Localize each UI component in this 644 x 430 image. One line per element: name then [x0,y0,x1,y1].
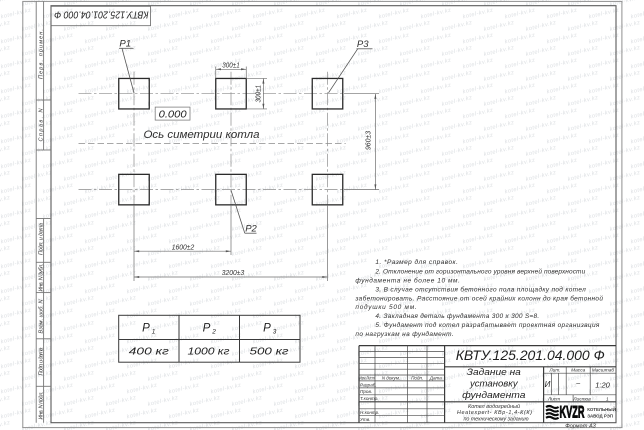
svg-text:–: – [575,381,580,388]
svg-text:КВТУ.125.201.04.000 Ф: КВТУ.125.201.04.000 Ф [456,347,605,363]
svg-text:P3: P3 [357,39,369,50]
svg-text:300±1: 300±1 [222,60,240,69]
svg-text:3. В случае отсутствия бетонн: 3. В случае отсутствия бетонного пола пл… [375,286,586,294]
svg-text:фундамента не более 10 мм.: фундамента не более 10 мм. [355,277,460,285]
svg-text:KVZR: KVZR [560,403,585,422]
svg-text:Ось симетрии котла: Ось симетрии котла [144,129,260,141]
svg-text:3: 3 [273,329,277,336]
svg-text:Лит.: Лит. [548,368,560,374]
svg-text:Справ. N: Справ. N [39,108,45,142]
svg-text:1: 1 [152,329,156,336]
svg-text:500 кг: 500 кг [250,346,289,358]
svg-text:Инв. N дубл.: Инв. N дубл. [39,264,45,292]
svg-text:Листов: Листов [572,396,591,402]
svg-text:Задание на: Задание на [467,367,521,378]
svg-text:P2: P2 [245,224,257,235]
svg-text:1600±2: 1600±2 [172,242,195,251]
svg-text:5. Фундамент под котел разраб: 5. Фундамент под котел разрабатывает про… [375,321,600,329]
svg-text:установку: установку [469,379,519,390]
svg-text:1:20: 1:20 [595,381,610,390]
svg-text:подушки 500 мм.: подушки 500 мм. [355,303,416,311]
svg-text:Котел водогрейный: Котел водогрейный [468,403,520,410]
svg-text:Инв. N подл.: Инв. N подл. [39,392,45,420]
svg-text:Разраб.: Разраб. [360,382,377,387]
svg-text:Подп. и дата: Подп. и дата [39,223,45,255]
svg-text:0.000: 0.000 [159,109,187,121]
svg-text:P: P [203,323,211,335]
svg-text:4. Закладная деталь фундамент: 4. Закладная деталь фундамента 300 х 300… [375,312,539,320]
svg-text:N докум.: N докум. [382,376,401,381]
svg-text:Н.контр.: Н.контр. [360,410,379,415]
svg-text:Утв.: Утв. [360,417,370,422]
svg-text:Т.контр.: Т.контр. [360,396,379,401]
svg-text:забетонировать. Расстояние от: забетонировать. Расстояние от осей крайн… [354,295,603,303]
svg-text:Взам. шиб. N: Взам. шиб. N [39,299,45,334]
svg-text:1000 кг: 1000 кг [188,346,230,358]
svg-text:300±1: 300±1 [254,85,263,103]
svg-text:КОТЕЛЬНЫЙ: КОТЕЛЬНЫЙ [587,407,616,412]
svg-text:Масштаб: Масштаб [592,368,615,374]
svg-text:Подп.: Подп. [411,376,423,381]
svg-text:P: P [263,323,271,335]
svg-text:Дата: Дата [429,376,443,381]
svg-text:2. Отклонение от горизонтальн: 2. Отклонение от горизонтального уровня … [374,267,585,275]
svg-text:Подп. и дата: Подп. и дата [39,348,45,376]
svg-text:Перв. примен.: Перв. примен. [39,29,45,79]
svg-text:960±3: 960±3 [363,130,372,150]
svg-text:Формат А3: Формат А3 [565,424,596,430]
svg-text:3200±3: 3200±3 [222,268,245,277]
svg-text:Изм.Лист: Изм.Лист [360,376,375,381]
svg-text:2: 2 [211,329,216,336]
svg-text:по нагрузкам на фундамент.: по нагрузкам на фундамент. [355,330,453,338]
svg-text:фундамента: фундамента [462,390,525,401]
svg-text:400 кг: 400 кг [129,346,169,358]
svg-text:КВТУ.125.201.04.000 Ф: КВТУ.125.201.04.000 Ф [54,8,149,19]
svg-text:И: И [545,380,551,389]
svg-text:ЗАВОД РЭП: ЗАВОД РЭП [587,413,613,418]
svg-text:1. *Размер для справок.: 1. *Размер для справок. [375,258,458,266]
svg-text:Пров.: Пров. [360,389,372,394]
svg-text:Heatexpert- КВр-1,4-К(К): Heatexpert- КВр-1,4-К(К) [457,410,532,416]
svg-text:Лист: Лист [547,396,560,402]
svg-text:1: 1 [606,396,609,402]
svg-text:P: P [142,323,150,335]
svg-text:по техническому заданию: по техническому заданию [464,417,529,423]
svg-text:P1: P1 [119,38,131,49]
svg-text:Масса: Масса [571,368,586,374]
